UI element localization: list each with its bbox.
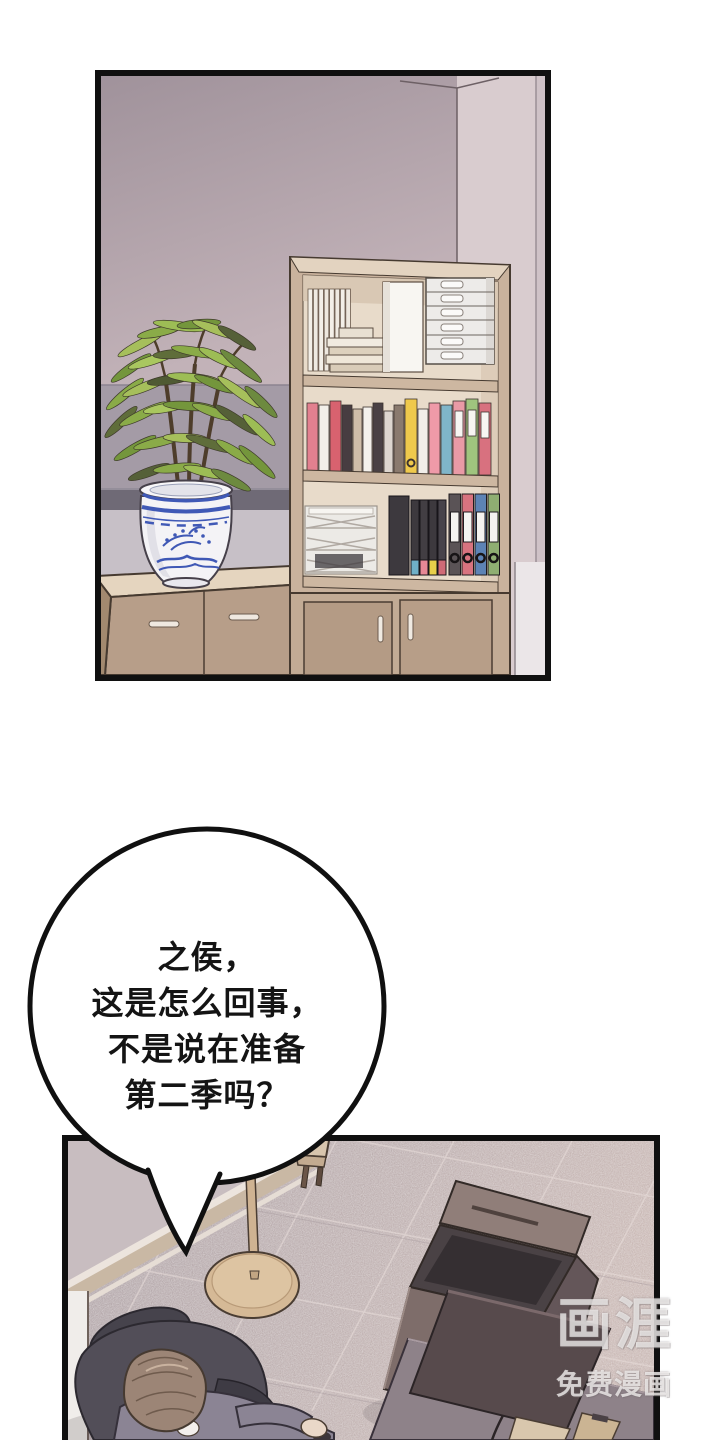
panel-office-shelf: [95, 70, 551, 681]
shelf-drawer-unit: [426, 278, 494, 364]
door-handle: [378, 616, 383, 642]
door-handle: [229, 614, 259, 620]
speech-bubble-tail: [148, 1170, 220, 1252]
door-handle: [149, 621, 179, 627]
bubble-line-3: 不是说在准备: [48, 1026, 366, 1072]
shelf-binders-row: [307, 399, 491, 475]
door-handle: [408, 614, 413, 640]
person-hair: [124, 1350, 206, 1432]
bookshelf-base-cabinet: [290, 593, 510, 675]
speech-bubble: 之侯， 这是怎么回事， 不是说在准备 第二季吗？: [8, 816, 408, 1276]
wire-letter-tray: [305, 506, 377, 574]
door-frame-strip: [515, 562, 545, 675]
bubble-line-2: 这是怎么回事，: [48, 980, 366, 1026]
bookshelf: [290, 257, 510, 675]
comic-page: { "speech_bubble": { "lines": ["之侯，", "这…: [0, 0, 720, 1440]
bubble-line-4: 第二季吗？: [48, 1072, 366, 1118]
box-files: [389, 496, 446, 575]
panel-office-shelf-art: [101, 76, 545, 675]
bubble-line-1: 之侯，: [48, 934, 366, 980]
speech-bubble-text: 之侯， 这是怎么回事， 不是说在准备 第二季吗？: [48, 934, 366, 1118]
shelf-white-box: [383, 282, 423, 372]
